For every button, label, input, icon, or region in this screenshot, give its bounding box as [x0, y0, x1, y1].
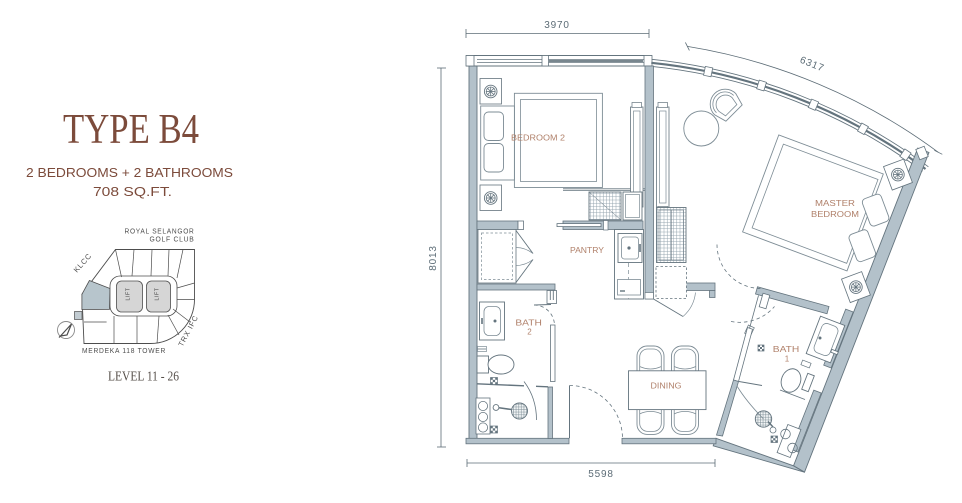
- svg-text:5598: 5598: [588, 469, 613, 480]
- svg-text:2 BEDROOMS + 2 BATHROOMS: 2 BEDROOMS + 2 BATHROOMS: [26, 165, 233, 180]
- svg-text:3970: 3970: [544, 20, 569, 31]
- svg-text:2: 2: [527, 328, 532, 337]
- svg-text:DINING: DINING: [651, 382, 682, 391]
- svg-text:TYPE B4: TYPE B4: [63, 107, 199, 153]
- svg-text:8013: 8013: [428, 245, 439, 270]
- svg-text:MASTER: MASTER: [815, 199, 855, 208]
- svg-text:BEDROOM: BEDROOM: [811, 210, 859, 219]
- svg-text:LIFT: LIFT: [155, 287, 161, 300]
- svg-text:LEVEL 11 - 26: LEVEL 11 - 26: [108, 370, 179, 385]
- svg-text:BATH: BATH: [515, 319, 542, 328]
- svg-text:LIFT: LIFT: [126, 287, 132, 300]
- svg-text:PANTRY: PANTRY: [570, 246, 605, 255]
- svg-text:6317: 6317: [798, 55, 826, 75]
- svg-text:GOLF CLUB: GOLF CLUB: [150, 235, 195, 244]
- svg-text:KLCC: KLCC: [72, 251, 94, 274]
- svg-text:708 SQ.FT.: 708 SQ.FT.: [93, 184, 172, 199]
- svg-text:BEDROOM 2: BEDROOM 2: [511, 134, 566, 143]
- svg-text:1: 1: [785, 355, 790, 364]
- svg-text:BATH: BATH: [773, 345, 800, 354]
- svg-text:MERDEKA 118 TOWER: MERDEKA 118 TOWER: [82, 346, 166, 355]
